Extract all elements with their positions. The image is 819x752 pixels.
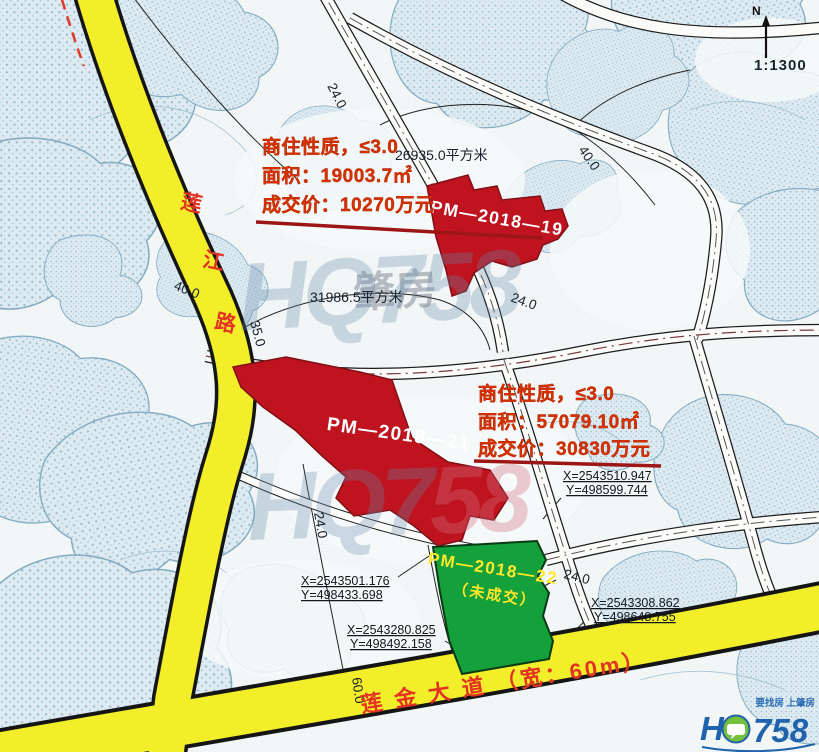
coord2-x: X=2543501.176: [301, 574, 390, 588]
annotation2-line2: 面积：57079.10㎡: [478, 410, 639, 433]
coord2-y: Y=498433.698: [301, 588, 383, 602]
watermark-part-a: HQ7: [245, 447, 441, 561]
logo-mark: H 758: [700, 710, 815, 751]
coord1-x: X=2543510.947: [563, 469, 652, 483]
north-label: N: [752, 4, 761, 18]
area-label-31986: 31986.5平方米: [310, 289, 403, 305]
annotation2-line3: 成交价：30830万元: [478, 437, 650, 460]
logo-number: 758: [753, 712, 809, 749]
scale-label: 1:1300: [754, 57, 807, 74]
annotation1-line2: 面积：19003.7㎡: [262, 164, 412, 187]
map-svg: 肇房 HQ758 HQ758 PM—2018—19 PM—2018—21 PM—…: [0, 0, 819, 752]
logo-letter-h: H: [700, 710, 725, 747]
area-label-26935: 26935.0平方米: [395, 147, 488, 163]
coord4-y: Y=498648.755: [594, 610, 676, 624]
annotation2-line1: 商住性质，≤3.0: [478, 382, 614, 405]
land-parcel-map: 肇房 HQ758 HQ758 PM—2018—19 PM—2018—21 PM—…: [0, 0, 819, 752]
logo-tagline: 要找房 上肇房: [755, 697, 815, 709]
coord3-y: Y=498492.158: [350, 637, 432, 651]
coord1-y: Y=498599.744: [566, 483, 648, 497]
annotation1-line1: 商住性质，≤3.0: [262, 135, 398, 158]
coord3-x: X=2543280.825: [347, 623, 436, 637]
coord4-x: X=2543308.862: [591, 596, 680, 610]
annotation1-line3: 成交价：10270万元: [262, 193, 434, 216]
